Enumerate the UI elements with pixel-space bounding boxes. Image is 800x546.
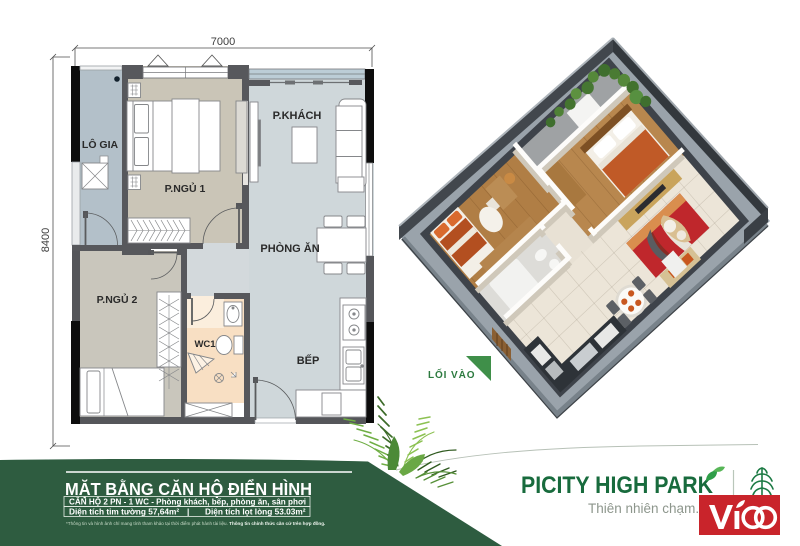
svg-text:PICITY HIGH PARK: PICITY HIGH PARK [521,472,713,499]
svg-text:PHÒNG ĂN: PHÒNG ĂN [260,242,319,255]
svg-text:Thiên nhiên chạm...: Thiên nhiên chạm... [588,501,707,516]
svg-text:BẾP: BẾP [297,354,320,367]
svg-text:Diện tích lọt lòng 53.03m²: Diện tích lọt lòng 53.03m² [205,506,306,516]
svg-text:P.NGỦ 1: P.NGỦ 1 [165,182,206,195]
svg-text:|: | [187,506,189,516]
svg-text:WC1: WC1 [194,339,216,350]
svg-text:P.KHÁCH: P.KHÁCH [273,109,322,122]
svg-text:CĂN HỘ 2 PN - 1 WC - Phòng khá: CĂN HỘ 2 PN - 1 WC - Phòng khách, bếp, p… [69,495,306,506]
svg-text:7000: 7000 [211,36,235,48]
svg-text:LÔ GIA: LÔ GIA [82,138,119,151]
svg-text:8400: 8400 [40,228,52,252]
svg-text:*Thông tin và hình ảnh chỉ man: *Thông tin và hình ảnh chỉ mang tính tha… [66,520,325,526]
svg-text:LỐI VÀO: LỐI VÀO [428,367,475,381]
svg-text:P.NGỦ 2: P.NGỦ 2 [97,293,138,306]
svg-text:Diện tích tim tường 57,64m²: Diện tích tim tường 57,64m² [69,506,179,516]
